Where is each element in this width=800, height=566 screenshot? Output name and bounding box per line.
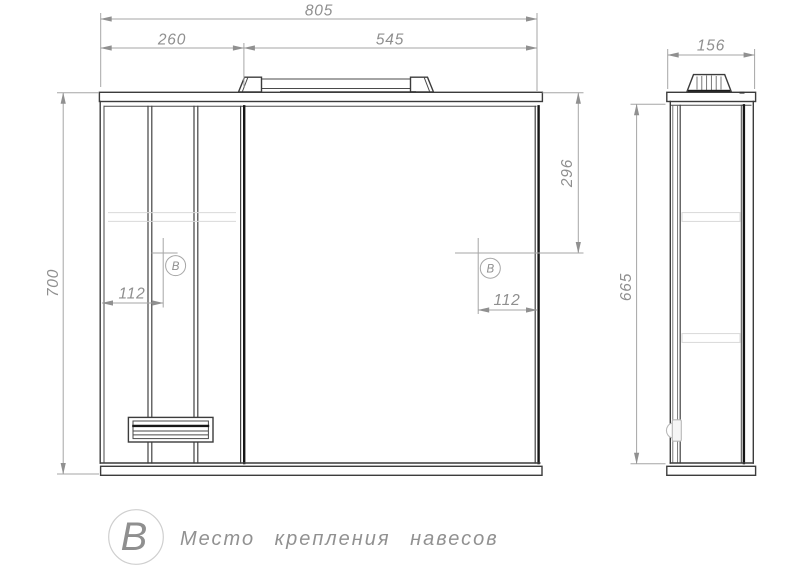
- base-plinth-front: [101, 466, 542, 475]
- dim-label-156: 156: [697, 38, 725, 55]
- dim-label-112-left: 112: [118, 286, 145, 303]
- dim-label-296: 296: [559, 159, 576, 188]
- dim-mount-offset-left: 112: [102, 238, 178, 308]
- mount-marker-left: В: [166, 256, 186, 276]
- dim-label-805: 805: [305, 3, 333, 20]
- front-view: [99, 77, 542, 475]
- mount-marker-right: В: [480, 258, 500, 278]
- side-view: [666, 75, 755, 476]
- dim-height: 700: [45, 93, 99, 474]
- light-fixture-side: [687, 75, 731, 93]
- door-handle: [666, 420, 681, 441]
- shelf-unit: [128, 417, 213, 442]
- technical-drawing: 805 260 545 700 296 112: [0, 0, 800, 566]
- dim-label-665: 665: [618, 273, 635, 301]
- legend-text: Место крепления навесов: [180, 528, 499, 550]
- dim-label-545: 545: [376, 32, 404, 49]
- mount-marker-left-symbol: В: [172, 261, 180, 273]
- dim-label-700: 700: [45, 269, 62, 297]
- dim-mount-height: 296: [543, 93, 584, 253]
- dim-label-260: 260: [157, 32, 186, 49]
- legend-symbol: В: [121, 515, 148, 559]
- top-board-front: [99, 92, 542, 101]
- dim-mount-offset-right: 112: [455, 238, 584, 314]
- dim-label-112-right: 112: [493, 292, 520, 309]
- base-plinth-side: [667, 466, 756, 475]
- drawing-svg: 805 260 545 700 296 112: [0, 0, 800, 566]
- top-board-side: [667, 92, 756, 101]
- legend: В Место крепления навесов: [109, 510, 499, 565]
- dim-side-height: 665: [618, 104, 666, 463]
- mount-marker-right-symbol: В: [486, 264, 494, 276]
